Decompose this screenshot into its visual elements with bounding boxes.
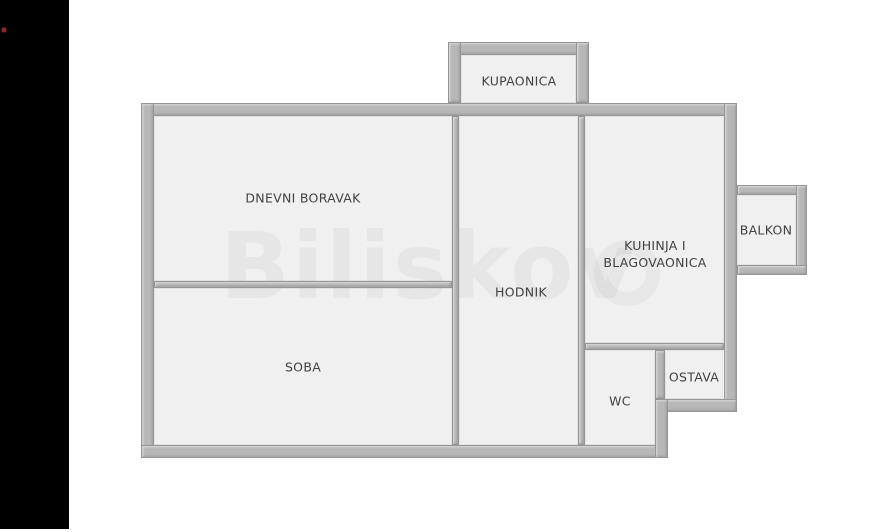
label-kupaonica: KUPAONICA <box>482 73 557 90</box>
wall-kupaonica-top <box>448 42 589 55</box>
label-balkon: BALKON <box>740 222 793 239</box>
wall-dnevni-soba-divider <box>154 281 452 288</box>
wall-exterior-bottom <box>141 445 668 458</box>
label-hodnik: HODNIK <box>495 284 547 301</box>
wall-step-right-of-wc <box>655 399 668 458</box>
wall-exterior-right <box>724 103 737 412</box>
label-soba: SOBA <box>285 359 321 376</box>
wall-wc-ostava-divider <box>655 350 665 399</box>
label-ostava: OSTAVA <box>669 369 719 386</box>
room-kuhinja <box>585 116 724 343</box>
label-dnevni-boravak: DNEVNI BORAVAK <box>245 190 360 207</box>
wall-hodnik-left <box>452 116 459 445</box>
wall-balkon-right <box>796 185 807 275</box>
label-kuhinja-i-blagovaonica: KUHINJA I BLAGOVAONICA <box>589 237 721 271</box>
wall-hodnik-right <box>578 116 585 445</box>
label-wc: WC <box>609 393 631 410</box>
wall-exterior-top <box>141 103 737 116</box>
wall-kupaonica-left <box>448 42 461 103</box>
wall-kuhinja-bottom <box>585 343 724 350</box>
wall-balkon-bottom <box>737 265 807 275</box>
red-marker-dot <box>2 28 6 32</box>
wall-exterior-left <box>141 103 154 458</box>
letterbox-bar <box>0 0 69 529</box>
wall-kupaonica-right <box>576 42 589 103</box>
photo-viewer-stage: Biliskov KUPAONICA DNEVNI BORAVAK SOBA H… <box>0 0 875 532</box>
room-hodnik <box>459 116 578 445</box>
